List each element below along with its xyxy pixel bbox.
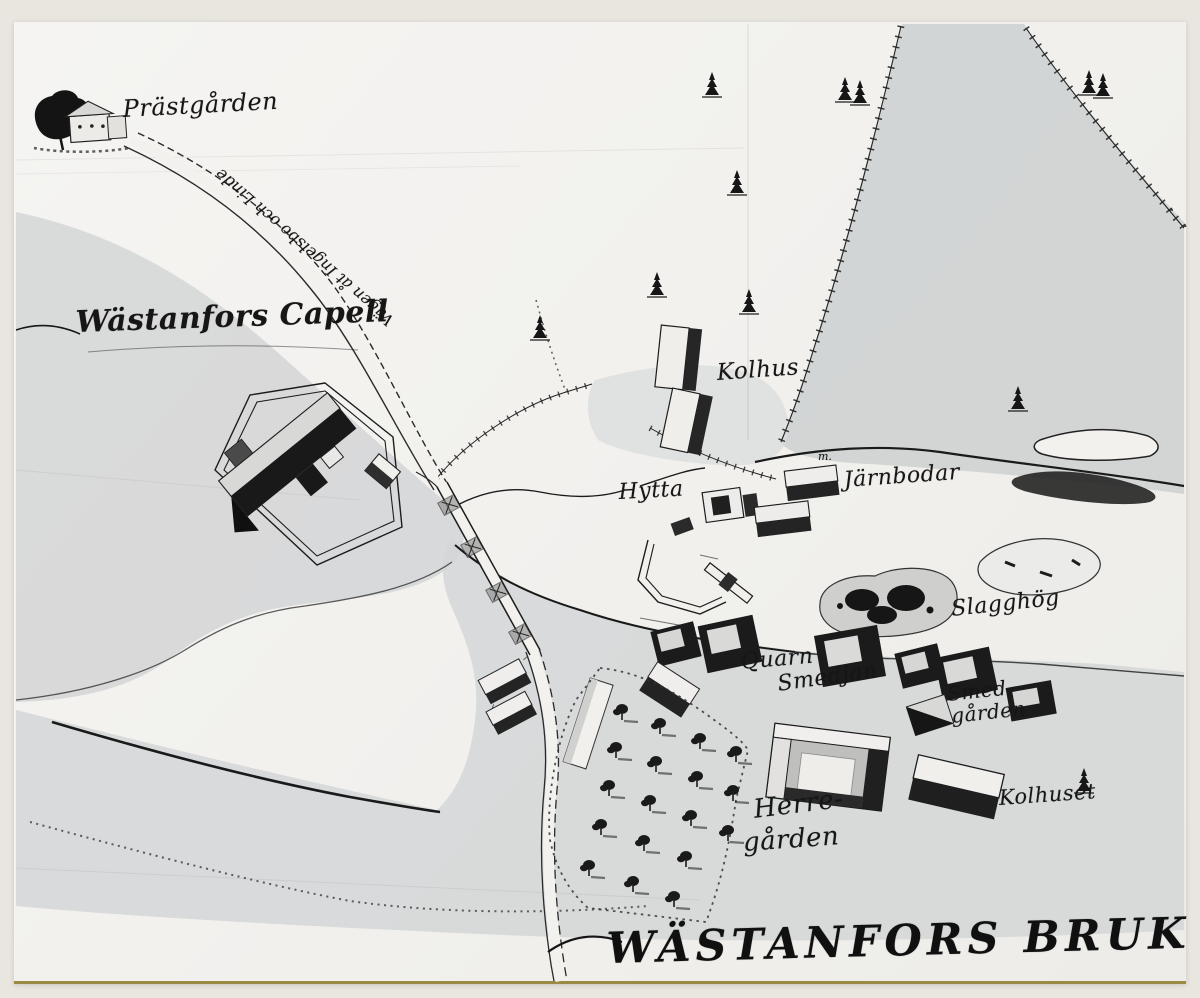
map-drawing (0, 0, 1200, 998)
label-hytta: Hytta (618, 477, 684, 505)
label-jarnbodar-note: m. (818, 450, 832, 463)
farmhouse-prastgarden (34, 90, 130, 152)
island (978, 539, 1100, 595)
hytta-works (638, 540, 753, 628)
building-jarnbodar (754, 465, 839, 537)
scanned-photo-page: { "document": { "kind": "photograph of a… (0, 0, 1200, 998)
slag-heap (820, 568, 957, 636)
